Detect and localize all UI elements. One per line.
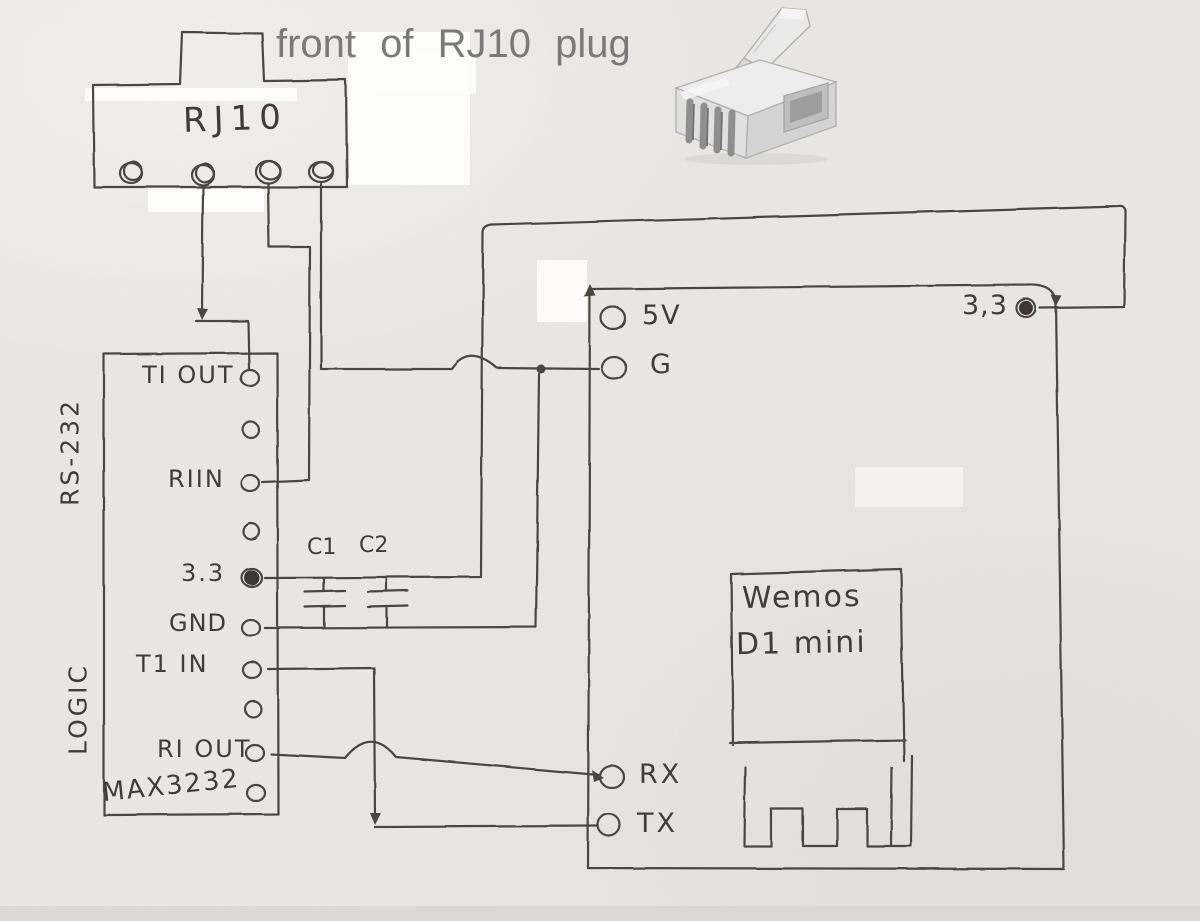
capacitor-label-c2: C2 — [359, 535, 388, 557]
whiteout-patch — [855, 467, 963, 507]
plug-contact-edge — [721, 112, 722, 150]
junction-dot — [537, 365, 546, 374]
wemos-module-label-line1: Wemos — [742, 582, 862, 614]
plug-contact — [717, 110, 718, 150]
annotation-front-of-rj10-plug: front of RJ10 plug — [276, 24, 631, 64]
max-pin-label-tiout: TI OUT — [142, 363, 234, 387]
wemos-pin-label-5v: 5V — [642, 302, 682, 329]
max-pin-label-t1in: T1 IN — [136, 652, 209, 676]
scanned-schematic-page: front of RJ10 plug RJ10 TI OUT RIIN 3.3 … — [0, 0, 1200, 921]
plug-contact — [689, 102, 690, 140]
max-pin-label-33: 3.3 — [181, 561, 225, 585]
plug-contact — [731, 113, 732, 153]
wemos-pin-label-33: 3,3 — [962, 292, 1008, 319]
rj10-plug-photo — [664, 0, 854, 168]
wemos-pin-label-tx: TX — [637, 810, 678, 837]
plug-contact — [703, 106, 704, 146]
max-pin-33-filled — [245, 571, 260, 586]
whiteout-patch — [537, 260, 587, 322]
wemos-pin-33-filled — [1019, 301, 1033, 315]
wemos-pin-label-rx: RX — [639, 761, 682, 788]
wemos-module-label-line2: D1 mini — [736, 628, 867, 660]
plug-contact-edge — [693, 104, 694, 140]
rs232-side-label: RS-232 — [58, 398, 83, 506]
plug-contact-edge — [707, 108, 708, 146]
scan-edge-band — [0, 906, 1200, 921]
max-pin-label-gnd: GND — [169, 611, 227, 635]
wemos-pin-label-g: G — [650, 351, 671, 378]
max-pin-label-riin: RIIN — [168, 467, 225, 491]
whiteout-patch — [148, 189, 264, 212]
rj10-label: RJ10 — [182, 100, 288, 138]
capacitor-label-c1: C1 — [307, 537, 336, 559]
max-pin-label-riout: RI OUT — [157, 737, 252, 761]
logic-side-label: LOGIC — [66, 663, 91, 755]
plug-latch-highlight — [779, 8, 806, 20]
